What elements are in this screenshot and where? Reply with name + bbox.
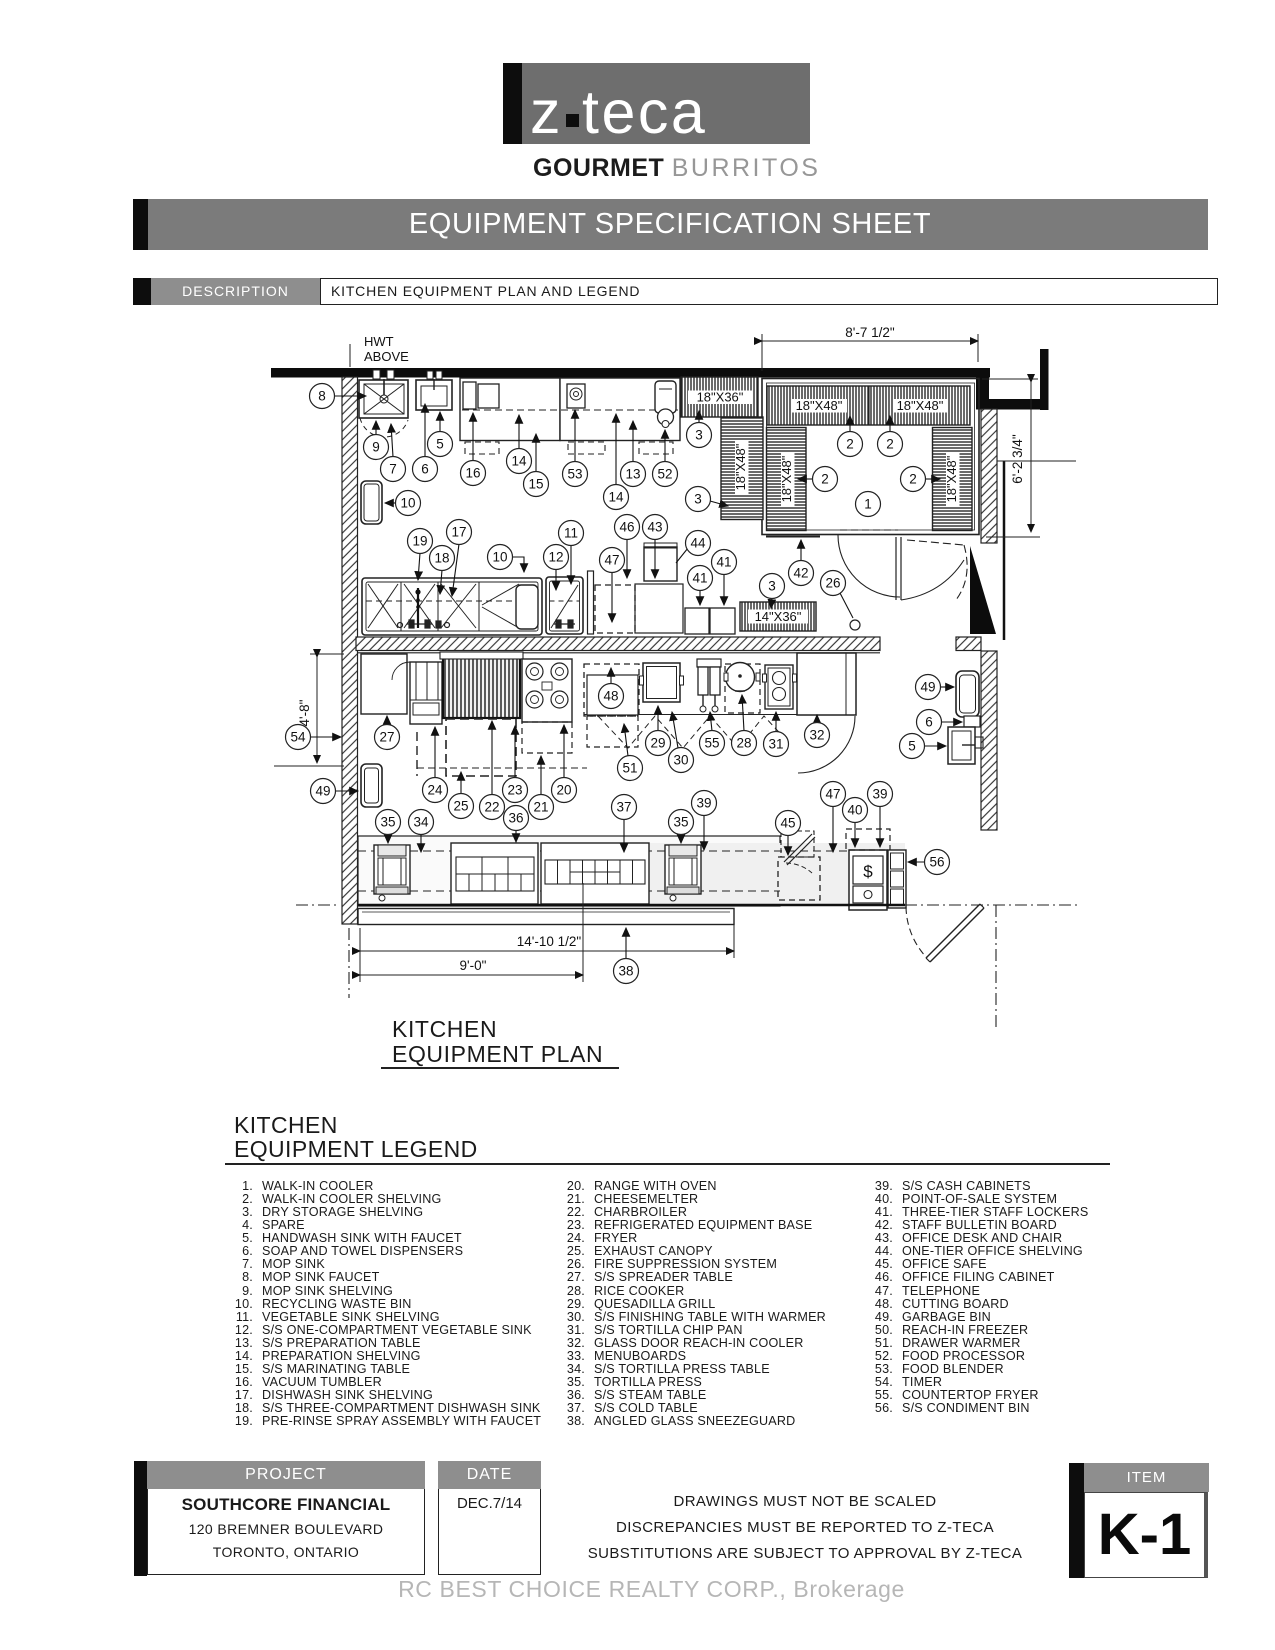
- svg-text:3: 3: [695, 428, 703, 443]
- svg-text:9: 9: [372, 440, 380, 455]
- svg-text:6: 6: [925, 715, 933, 730]
- svg-text:38: 38: [618, 964, 633, 979]
- svg-text:14: 14: [608, 490, 624, 505]
- svg-text:5: 5: [908, 739, 916, 754]
- svg-text:19: 19: [412, 534, 427, 549]
- svg-text:18"X48": 18"X48": [733, 443, 748, 490]
- svg-text:18"X48": 18"X48": [897, 398, 944, 413]
- svg-text:42: 42: [793, 566, 808, 581]
- svg-text:12: 12: [548, 550, 563, 565]
- svg-text:43: 43: [647, 520, 662, 535]
- svg-text:16: 16: [465, 466, 480, 481]
- svg-text:7: 7: [389, 462, 397, 477]
- svg-text:11: 11: [564, 526, 578, 541]
- svg-text:4'-8": 4'-8": [297, 699, 312, 726]
- svg-text:2: 2: [886, 437, 894, 452]
- svg-text:ABOVE: ABOVE: [364, 349, 409, 364]
- svg-text:8: 8: [318, 389, 326, 404]
- svg-text:53: 53: [567, 467, 582, 482]
- svg-text:18: 18: [434, 551, 449, 566]
- svg-text:34: 34: [413, 815, 429, 830]
- svg-text:21: 21: [533, 800, 548, 815]
- svg-text:27: 27: [379, 730, 394, 745]
- svg-text:2: 2: [821, 472, 829, 487]
- svg-text:55: 55: [704, 736, 719, 751]
- svg-text:14: 14: [511, 454, 527, 469]
- svg-text:23: 23: [507, 783, 522, 798]
- svg-text:18"X48": 18"X48": [944, 455, 959, 502]
- svg-text:45: 45: [780, 816, 795, 831]
- svg-text:22: 22: [484, 800, 499, 815]
- svg-text:14'-10 1/2": 14'-10 1/2": [517, 934, 582, 949]
- svg-text:56: 56: [929, 855, 944, 870]
- svg-text:39: 39: [696, 796, 711, 811]
- svg-text:3: 3: [694, 492, 702, 507]
- svg-text:2: 2: [909, 472, 917, 487]
- svg-text:15: 15: [528, 477, 543, 492]
- svg-text:46: 46: [619, 520, 634, 535]
- svg-text:47: 47: [604, 553, 619, 568]
- svg-text:48: 48: [603, 689, 618, 704]
- svg-text:13: 13: [625, 467, 640, 482]
- svg-text:24: 24: [427, 783, 443, 798]
- svg-text:5: 5: [436, 437, 444, 452]
- svg-text:14"X36": 14"X36": [755, 609, 802, 624]
- svg-text:18"X48": 18"X48": [779, 455, 794, 502]
- svg-text:37: 37: [616, 800, 631, 815]
- svg-text:40: 40: [847, 803, 862, 818]
- svg-text:1: 1: [864, 497, 872, 512]
- svg-text:2: 2: [846, 437, 854, 452]
- svg-text:HWT: HWT: [364, 334, 394, 349]
- svg-text:39: 39: [872, 787, 887, 802]
- svg-text:51: 51: [622, 761, 637, 776]
- svg-text:28: 28: [736, 736, 751, 751]
- svg-text:36: 36: [508, 811, 523, 826]
- svg-text:6'-2 3/4": 6'-2 3/4": [1010, 434, 1025, 484]
- svg-text:49: 49: [315, 784, 330, 799]
- svg-text:32: 32: [809, 728, 824, 743]
- svg-text:10: 10: [492, 550, 507, 565]
- svg-text:29: 29: [650, 736, 665, 751]
- svg-text:54: 54: [290, 730, 306, 745]
- svg-text:6: 6: [421, 462, 429, 477]
- svg-text:10: 10: [400, 496, 415, 511]
- svg-text:9'-0": 9'-0": [460, 958, 487, 973]
- svg-text:20: 20: [556, 783, 571, 798]
- svg-text:41: 41: [716, 555, 731, 570]
- svg-text:31: 31: [768, 737, 783, 752]
- svg-text:3: 3: [768, 579, 776, 594]
- svg-text:44: 44: [690, 536, 706, 551]
- svg-text:41: 41: [692, 571, 707, 586]
- svg-text:49: 49: [920, 680, 935, 695]
- svg-text:30: 30: [673, 753, 688, 768]
- svg-text:35: 35: [673, 815, 688, 830]
- svg-text:17: 17: [451, 525, 466, 540]
- svg-text:47: 47: [825, 787, 840, 802]
- svg-text:8'-7 1/2": 8'-7 1/2": [845, 325, 895, 340]
- svg-text:26: 26: [825, 576, 840, 591]
- svg-text:18"X48": 18"X48": [796, 398, 843, 413]
- svg-text:$: $: [863, 862, 873, 881]
- svg-text:35: 35: [380, 815, 395, 830]
- svg-text:52: 52: [657, 467, 672, 482]
- svg-text:18"X36": 18"X36": [697, 390, 744, 405]
- svg-text:25: 25: [453, 799, 468, 814]
